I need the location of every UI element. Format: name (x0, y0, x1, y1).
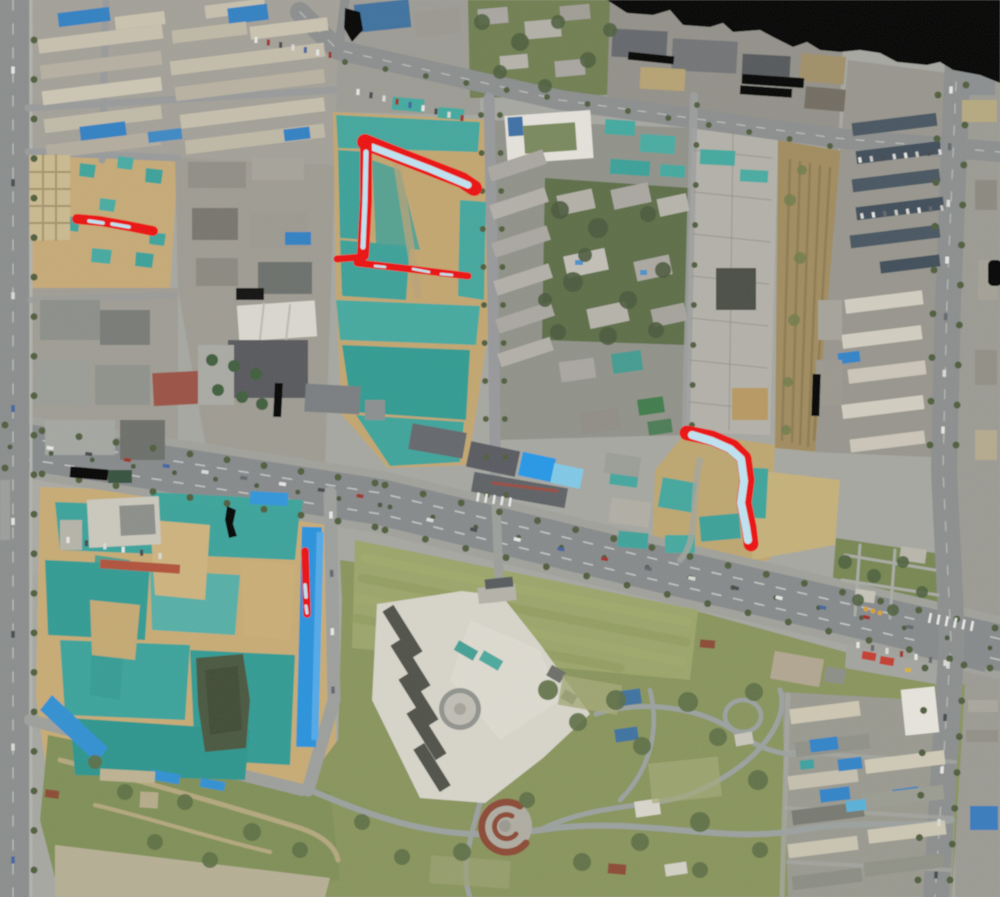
photo-grain-overlay (0, 0, 1000, 897)
orthomosaic-viewport (0, 0, 1000, 897)
orthomosaic-image (0, 0, 1000, 897)
